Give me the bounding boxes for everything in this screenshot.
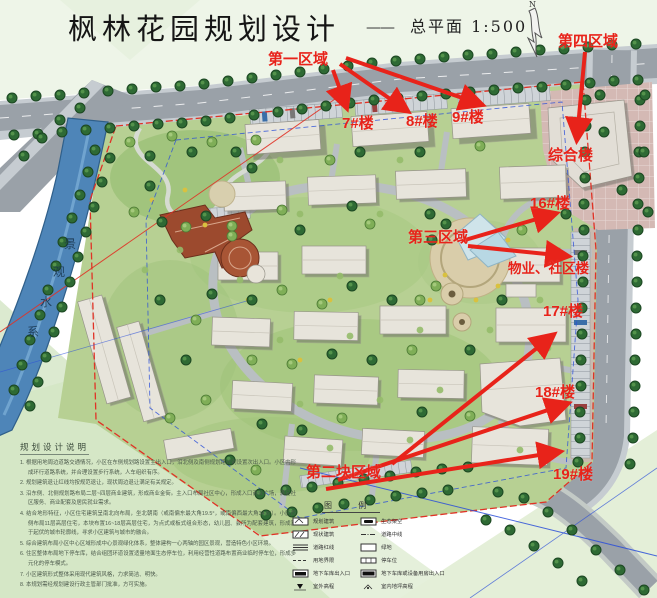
legend-label: 地下车库出入口 [313,569,350,577]
site-boundary-icon [292,556,309,565]
greenspace-icon [360,543,377,552]
legend-label: 地下车库或设备用房出入口 [381,569,445,577]
planned-building-icon [292,517,309,526]
note-item: 8. 本规划需经规划建设行政主管部门批准，方可实施。 [20,581,296,591]
parking-icon [360,556,377,565]
note-item: 5. 综合建筑布局小区中心区域形成中心景观绿化体系，整体建构一心两轴的园区景观，… [20,540,296,550]
water-label-char: 景 [64,238,76,250]
legend-title: 图 例 [322,500,380,513]
water-label-char: 观 [53,266,65,278]
north-label: N [529,0,536,9]
eco-deck-icon [360,517,377,526]
label-building-16: 16#楼 [530,196,570,211]
legend-left-column: 规划建筑 现状建筑 道路红线 用地界限 地下车库出入口 室外高程 [292,517,350,590]
outdoor-elevation-icon [292,582,309,591]
label-complex-building: 综合楼 [548,148,593,163]
sheet-subtitle-scale: 总平面 1:500 [410,13,527,37]
note-item: 1. 根据用地周边道路交通情况，小区在东侧规划路设置主出入口，沿北侧及南侧规划路… [20,459,296,478]
road-centerline-icon [360,530,377,539]
label-building-9: 9#楼 [452,110,484,125]
legend-label: 绿地 [381,543,392,551]
planning-notes-title: 规划设计说明 [20,441,89,455]
note-item: 2. 规划建筑退让红线均按规范退让，现状周边退让满足有关规定。 [20,479,296,489]
existing-building-icon [292,530,309,539]
label-area3: 第三区域 [408,230,468,245]
label-area4: 第四区域 [558,34,618,49]
legend-label: 生态架空 [381,517,402,525]
label-building-8: 8#楼 [406,114,438,129]
legend-label: 室内地坪高程 [381,582,413,590]
garage-equipment-entrance-icon [360,569,377,578]
label-community-building: 物业、社区楼 [508,262,589,276]
site-plan-sheet: 枫林花园规划设计 —— 总平面 1:500 N 景 观 水 系 第一区域 第四区… [0,0,657,598]
legend-label: 现状建筑 [313,530,334,538]
note-item: 3. 沿东侧、北侧规划路布局二层~四层商业建筑，形成商业金街。主入口布局社区中心… [20,490,296,509]
legend-label: 室外高程 [313,582,334,590]
legend-label: 道路中线 [381,530,402,538]
legend-label: 停车位 [381,556,397,564]
planning-notes: 规划设计说明 1. 根据用地周边道路交通情况，小区在东侧规划路设置主出入口，沿北… [20,437,296,592]
legend: 图 例 规划建筑 现状建筑 道路红线 用地界限 地下车库出入口 室外高程 生态架… [292,495,522,590]
title-dash: —— [366,18,394,36]
legend-right-column: 生态架空 道路中线 绿地 停车位 地下车库或设备用房出入口 室内地坪高程 [360,517,445,590]
note-item: 6. 住区整体布局地下停车库，结合组团环道设置适量地面生态停车位，利用经营性道路… [20,550,296,569]
note-item: 7. 小区建筑形式整体采用现代建筑风格，力求简洁、明快。 [20,571,296,581]
label-area2: 第二块区域 [306,465,381,480]
label-building-19: 19#楼 [553,467,593,482]
water-label-char: 系 [27,326,39,338]
legend-label: 规划建筑 [313,517,334,525]
garage-entrance-icon [292,569,309,578]
label-building-18: 18#楼 [535,385,575,400]
indoor-elevation-icon [360,582,377,591]
sheet-title: 枫林花园规划设计 [68,6,340,48]
road-redline-icon [292,543,309,552]
label-area1: 第一区域 [268,52,328,67]
legend-label: 用地界限 [313,556,334,564]
legend-label: 道路红线 [313,543,334,551]
water-label-char: 水 [40,296,52,308]
note-item: 4. 结合地形特征，小区住宅建筑呈南北向布局，坐北朝南（或南偏东最大角19.5°… [20,510,296,539]
label-building-17: 17#楼 [543,304,583,319]
label-building-7: 7#楼 [342,116,374,131]
